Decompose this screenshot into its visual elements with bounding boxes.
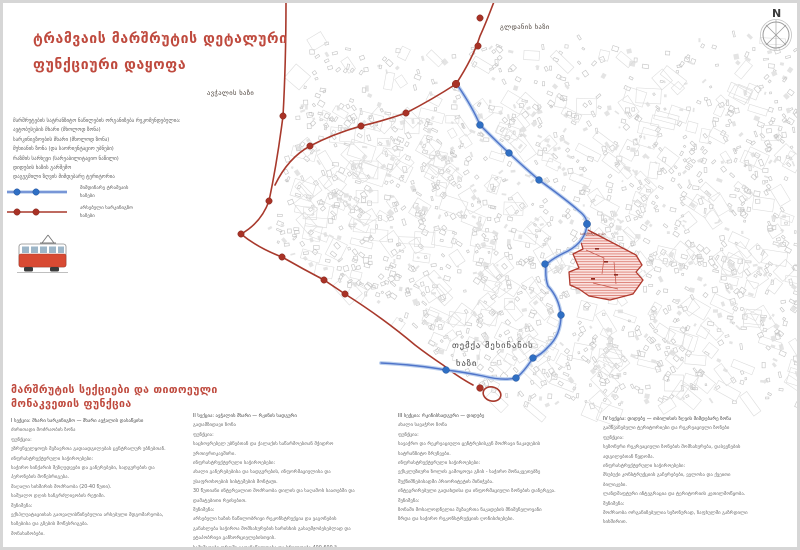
section-text-line: შენიშვნა:	[193, 506, 355, 515]
section-text-line: შენიშვნა:	[11, 502, 166, 511]
building-fabric	[267, 31, 800, 427]
route-turn-loop	[481, 385, 502, 404]
section-column-2: II სექცია: ავჭალის მხარი — რკინის სადგურ…	[193, 412, 355, 550]
legend-note-line: სარკინიგზოების მხარი (მხოლოდ ზონა)	[13, 136, 181, 145]
section-text-line: ინფრასტრუქტურული საჭიროებები:	[603, 462, 748, 471]
legend-red-label-line1: არსებული სარკინიგზო	[80, 206, 133, 213]
label-gldani-line: გლდანის ხაზი	[500, 23, 550, 31]
legend-note-line: დაგეგმილი ზღვის მიმდებარე ტერიტორია	[13, 173, 181, 182]
section-text-line: ახალი სავაჭრო ზონა	[398, 421, 556, 430]
section-text-line: მსუბუქი კონსტრუქციის გაჩერებები, ველოსა …	[603, 471, 748, 480]
section-text-line: ინტეგრირებული გადახდისა და ინფორმაციული …	[398, 487, 556, 496]
section-text-line: ფუნქცია:	[193, 431, 355, 440]
section-text-line: ძირითადი მოძრაობის ზონა	[11, 426, 166, 435]
section-text-line: I სექცია: მხარი სარკინიგზო — მხარი ავჭალ…	[11, 417, 166, 426]
section-text-line: შენიშვნა:	[603, 500, 748, 509]
section-text-line: ზონაში მოსალოდნელია მგზავრთა ნაკადების მ…	[398, 506, 556, 515]
north-compass-icon	[761, 20, 792, 51]
legend-note-line: ავტობუსების მხარი (მხოლოდ ზონა)	[13, 126, 181, 135]
section-text-line: ბილიკები.	[603, 481, 748, 490]
section-text-line: არსებული ხაზის ნაწილობრივი რეკონსტრუქცია…	[193, 515, 355, 524]
section-text-line: ექსპლუატაციისას გათვალისწინებულია არსებუ…	[11, 511, 166, 520]
section-text-line: დამატებითი რეისებით.	[193, 497, 355, 506]
section-text-line: გადამზიდავი ზონა	[193, 421, 355, 430]
section-column-4: IV სექცია: დიდუბე — თბილისის ზღვის მიმდე…	[603, 415, 748, 528]
section-text-line: შენიშვნა:	[398, 497, 556, 506]
legend-red-label-line2: ხაზები	[80, 214, 95, 221]
section-column-3: III სექცია: რკინისსადგური — დიდუბეახალი …	[398, 412, 556, 525]
section-text-line: ფუნქცია:	[11, 436, 166, 445]
sections-heading-line2: მონაკვეთის ფუნქცია	[11, 398, 132, 410]
section-text-line: მონახაზობები.	[11, 530, 166, 539]
legend-note-line: მარშრუტების სატრანზიტო ნაწილების ორგანიზ…	[13, 117, 181, 126]
section-text-line: 30 წუთიანი ინტერვალით მოძრაობა დილის და …	[193, 487, 355, 496]
section-column-1: I სექცია: მხარი სარკინიგზო — მხარი ავჭალ…	[11, 417, 166, 539]
legend-note-line: დიდუბის ხაზის გარშემო	[13, 164, 181, 173]
legend-red-line-sample	[7, 209, 67, 215]
section-text-line: უზრუნველყოფს მგზავრთა გადაადგილებას ცენტ…	[11, 445, 166, 454]
legend-blue-label-line2: ხაზები	[80, 194, 95, 201]
section-text-line: ხაზებისა და გზების მოწესრიგება.	[11, 520, 166, 529]
section-text-line: მოძრაობა ორგანიზებულია სეზონურად, ზაფხულ…	[603, 509, 748, 518]
section-text-line: საშუალო დღის ხანგრძლივობის რეჟიმი.	[11, 492, 166, 501]
section-text-line: სატრანზიტო ზრუნვები.	[398, 450, 556, 459]
section-text-line: გამწვანებული ტერიტორიები და რეკრეაციული …	[603, 424, 748, 433]
section-text-line: ინფრასტრუქტურული საჭიროებები:	[193, 459, 355, 468]
section-text-line: ადგილებთან წვდომა.	[603, 453, 748, 462]
legend-notes: მარშრუტების სატრანზიტო ნაწილების ორგანიზ…	[13, 117, 181, 183]
section-text-line: ახალი გაჩერებებისა და სადგურების, ინფორმ…	[193, 468, 355, 477]
section-text-line: IV სექცია: დიდუბე — თბილისის ზღვის მიმდე…	[603, 415, 748, 424]
section-text-line: ექსკლუზიური ზოლის გამოყოფა გზის - საჭირო…	[398, 468, 556, 477]
label-temka-line1: თემქა მეხინანის	[452, 341, 534, 351]
label-depot-zone: სარემონტო დეპო	[580, 232, 606, 236]
label-avchala-line: ავჭალის ხაზი	[207, 89, 254, 97]
page-title-line1: ტრამვაის მარშრუტის დეტალური	[33, 31, 288, 47]
page-title-line2: ფუნქციური დაყოფა	[33, 57, 186, 73]
tram-photo	[17, 235, 68, 273]
section-text-line: საჭირო სიჩქარის შეზღუდვები და გაჩერებები…	[11, 464, 166, 473]
section-text-line: III სექცია: რკინისსადგური — დიდუბე	[398, 412, 556, 421]
section-text-line: II სექცია: ავჭალის მხარი — რკინის სადგურ…	[193, 412, 355, 421]
section-text-line: ფუნქცია:	[603, 434, 748, 443]
section-text-line: პერონების მოწესრიგება.	[11, 473, 166, 482]
route-avchala	[241, 3, 473, 385]
section-text-line: სამუშაოები დროში გადანაწილდება და სრულდე…	[193, 544, 355, 550]
section-text-line: სეზონური რეკრეაციული ზონების მომსახურება…	[603, 443, 748, 452]
legend-blue-line-sample	[7, 189, 67, 195]
poster-page: ტრამვაის მარშრუტის დეტალური ფუნქციური და…	[0, 0, 800, 550]
label-temka-line2: ხაზი	[456, 359, 477, 369]
section-text-line: ინფრასტრუქტურული საჭიროებები:	[398, 459, 556, 468]
section-text-line: უსაფრთხოების სისტემების მონტაჟი.	[193, 478, 355, 487]
legend-note-line: რაზმის სარხევი (სარეაბილიტაციო ნაწილი)	[13, 155, 181, 164]
section-text-line: შუქნიშნებისადმი პრიორიტეტის მინიჭება.	[398, 478, 556, 487]
section-text-line: სიხშირით.	[603, 518, 748, 527]
section-text-line: სავაჭრო და რეკრეაციული ცენტრებისკენ მოძრ…	[398, 440, 556, 449]
north-label: N	[772, 7, 781, 20]
section-text-line: ინფრასტრუქტურული საჭიროებები:	[11, 455, 166, 464]
legend-blue-label-line1: მიმდინარე ტრამვაის	[80, 186, 128, 193]
section-text-line: ფუნქცია:	[398, 431, 556, 440]
section-text-line: ზრდა და საჭირო რეკონსტრუქციის ღონისძიებე…	[398, 515, 556, 524]
section-text-line: ლანდშაფტური ინტეგრაცია და ტერიტორიის კეთ…	[603, 490, 748, 499]
section-text-line: განახლება საჭიროა მომსახურების ხარისხის …	[193, 525, 355, 534]
section-text-line: საცხოვრებელ უბნებთან და ქალაქის საწარმოე…	[193, 440, 355, 449]
section-text-line: მაღალი სიხშირის მოძრაობა (20-40 წუთი).	[11, 483, 166, 492]
sections-heading-line1: მარშრუტის სექციები და თითოეული	[11, 384, 218, 396]
section-text-line: ეტაპობრივი განხორციელებისთვის.	[193, 534, 355, 543]
legend-note-line: მუხიანის ზონა (და საორიენტაციო უბნები)	[13, 145, 181, 154]
section-text-line: ურთიერთკავშირი.	[193, 450, 355, 459]
